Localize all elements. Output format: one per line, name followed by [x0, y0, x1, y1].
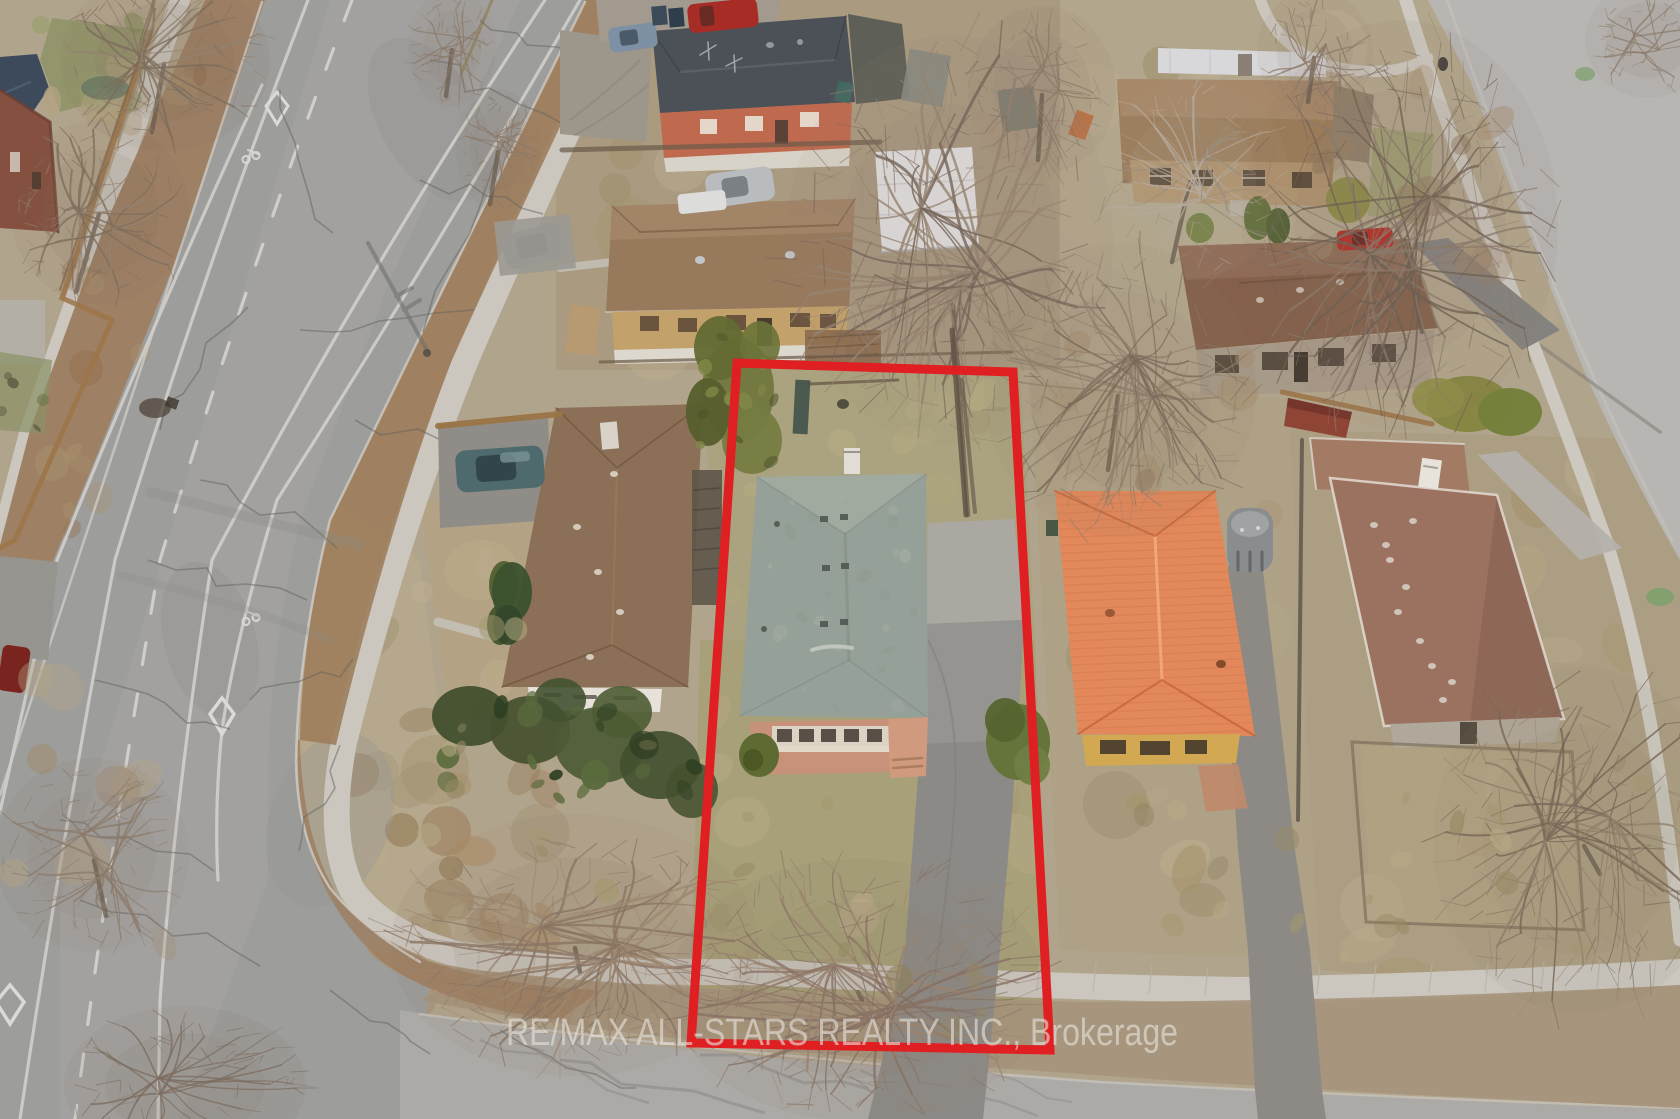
- svg-text:RE/MAX ALL-STARS REALTY INC.,: RE/MAX ALL-STARS REALTY INC., Brokerage: [506, 1012, 1178, 1054]
